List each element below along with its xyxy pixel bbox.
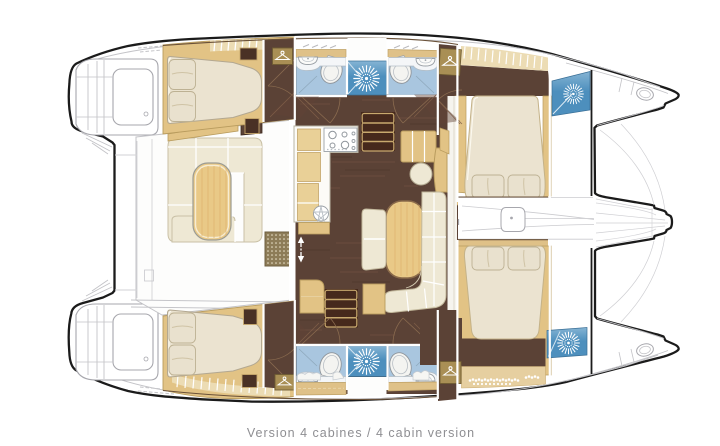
svg-text:Version 4 cabines / 4 cabin ve: Version 4 cabines / 4 cabin version: [247, 426, 475, 440]
